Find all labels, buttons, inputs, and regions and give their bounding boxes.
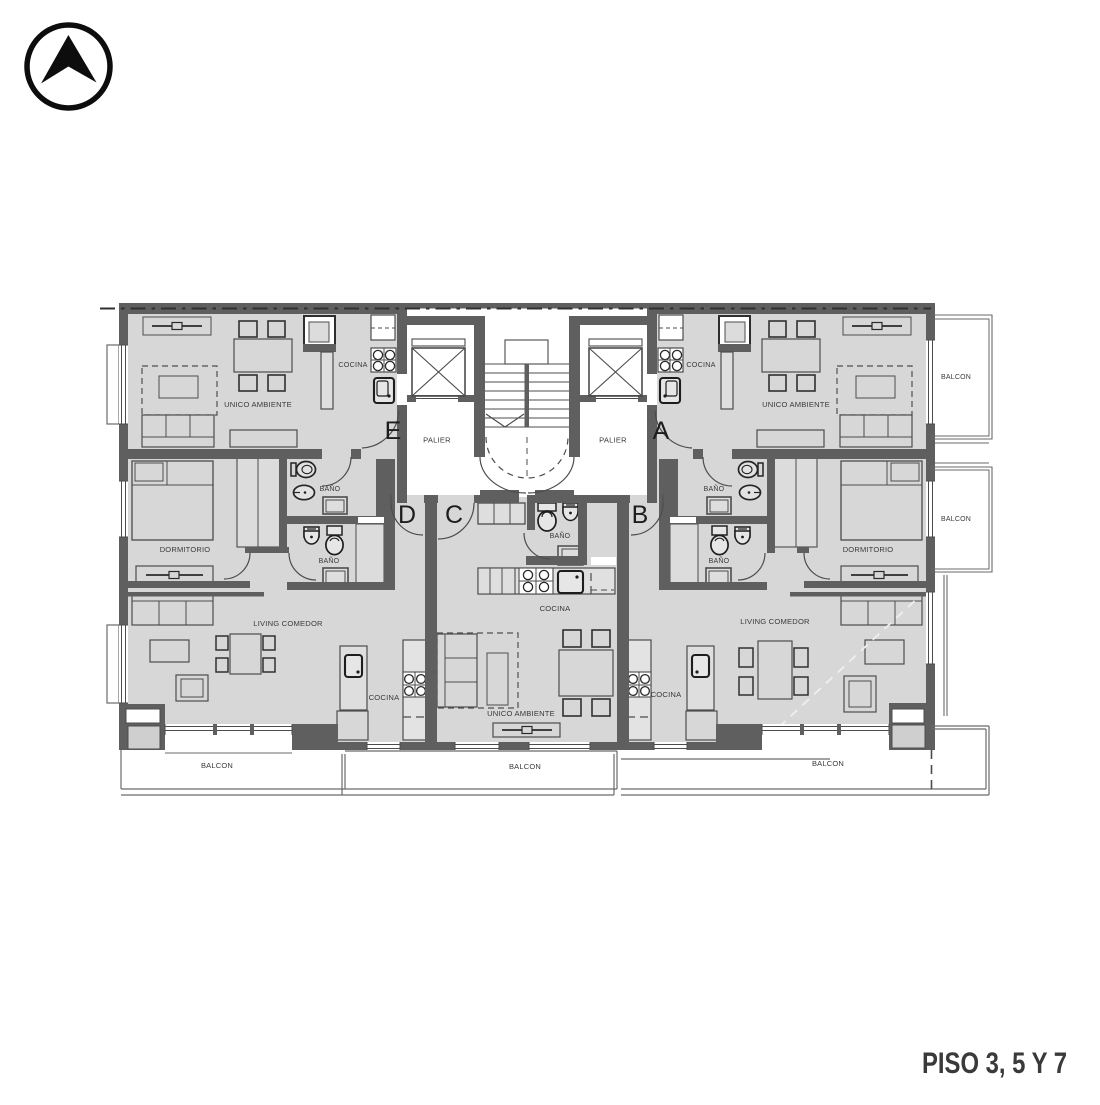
svg-text:BALCON: BALCON <box>812 759 844 768</box>
svg-text:A: A <box>653 417 670 445</box>
svg-text:BAÑO: BAÑO <box>320 484 341 493</box>
svg-text:B: B <box>632 501 649 529</box>
svg-text:UNICO AMBIENTE: UNICO AMBIENTE <box>224 400 292 409</box>
svg-text:E: E <box>385 417 402 445</box>
svg-text:BAÑO: BAÑO <box>704 484 725 493</box>
svg-text:COCINA: COCINA <box>686 360 715 369</box>
svg-text:BAÑO: BAÑO <box>709 556 730 565</box>
svg-text:D: D <box>398 501 416 529</box>
svg-text:LIVING COMEDOR: LIVING COMEDOR <box>253 619 323 628</box>
svg-text:COCINA: COCINA <box>540 604 571 613</box>
svg-text:DORMITORIO: DORMITORIO <box>160 545 211 554</box>
svg-text:BALCON: BALCON <box>941 374 971 381</box>
svg-text:PISO 3, 5 Y 7: PISO 3, 5 Y 7 <box>922 1047 1067 1080</box>
svg-text:BAÑO: BAÑO <box>319 556 340 565</box>
svg-text:C: C <box>445 501 463 529</box>
svg-text:COCINA: COCINA <box>338 360 367 369</box>
svg-text:BALCON: BALCON <box>941 516 971 523</box>
svg-text:BALCON: BALCON <box>201 761 233 770</box>
svg-text:PALIER: PALIER <box>423 436 451 445</box>
svg-text:PALIER: PALIER <box>599 436 627 445</box>
svg-text:UNICO AMBIENTE: UNICO AMBIENTE <box>762 400 830 409</box>
svg-text:LIVING COMEDOR: LIVING COMEDOR <box>740 617 810 626</box>
svg-text:DORMITORIO: DORMITORIO <box>843 545 894 554</box>
svg-text:UNICO AMBIENTE: UNICO AMBIENTE <box>487 709 555 718</box>
svg-text:COCINA: COCINA <box>651 690 682 699</box>
svg-text:BALCON: BALCON <box>509 762 541 771</box>
svg-text:COCINA: COCINA <box>369 693 400 702</box>
svg-text:BAÑO: BAÑO <box>550 531 571 540</box>
